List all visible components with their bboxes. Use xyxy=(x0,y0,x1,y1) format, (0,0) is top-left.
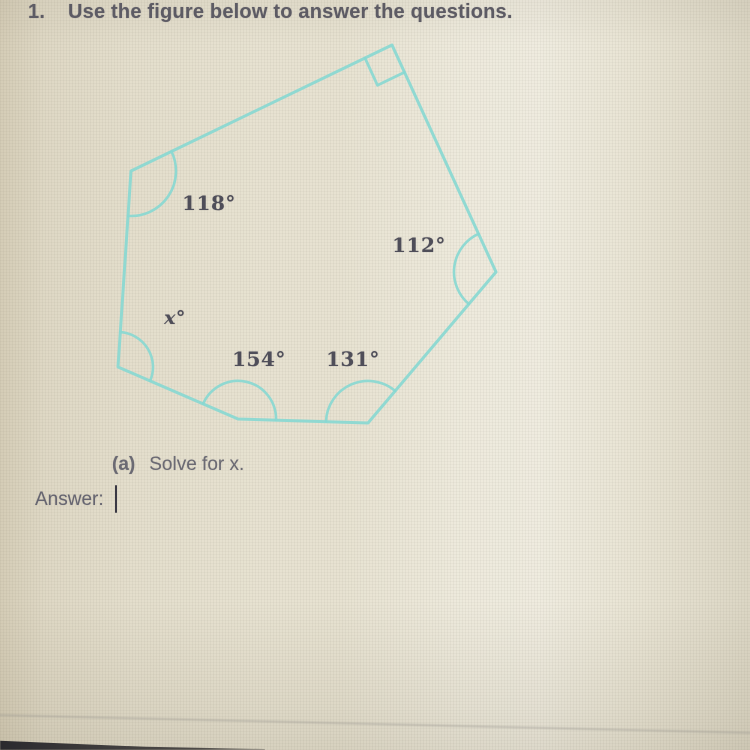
angle-label-118: 118° xyxy=(182,191,236,215)
hexagon-figure xyxy=(0,0,750,750)
screen-texture xyxy=(0,0,750,750)
angle-label-154: 154° xyxy=(232,347,286,371)
question-heading: 1. Use the figure below to answer the qu… xyxy=(28,0,728,25)
answer-label: Answer: xyxy=(35,487,104,513)
part-a: (a) Solve for x. xyxy=(112,453,244,477)
angle-label-112: 112° xyxy=(392,233,446,257)
part-a-text: Solve for x. xyxy=(149,453,244,477)
part-a-label: (a) xyxy=(112,453,135,477)
answer-row: Answer: xyxy=(35,487,117,513)
angle-arc-118 xyxy=(128,151,176,216)
question-number: 1. xyxy=(28,0,68,25)
screen-reflection-line xyxy=(0,714,750,734)
angle-arc-x xyxy=(120,332,153,381)
angle-label-x: x° xyxy=(164,307,186,329)
right-angle-icon xyxy=(365,58,405,85)
screen-bezel-edge xyxy=(0,740,265,750)
angle-arc-131 xyxy=(326,381,395,422)
angle-arc-154 xyxy=(203,381,276,420)
page-background: 1. Use the figure below to answer the qu… xyxy=(0,0,750,750)
text-cursor[interactable] xyxy=(115,485,118,513)
question-prompt: Use the figure below to answer the quest… xyxy=(68,0,513,25)
angle-arc-112 xyxy=(454,234,479,304)
angle-label-131: 131° xyxy=(326,347,380,371)
